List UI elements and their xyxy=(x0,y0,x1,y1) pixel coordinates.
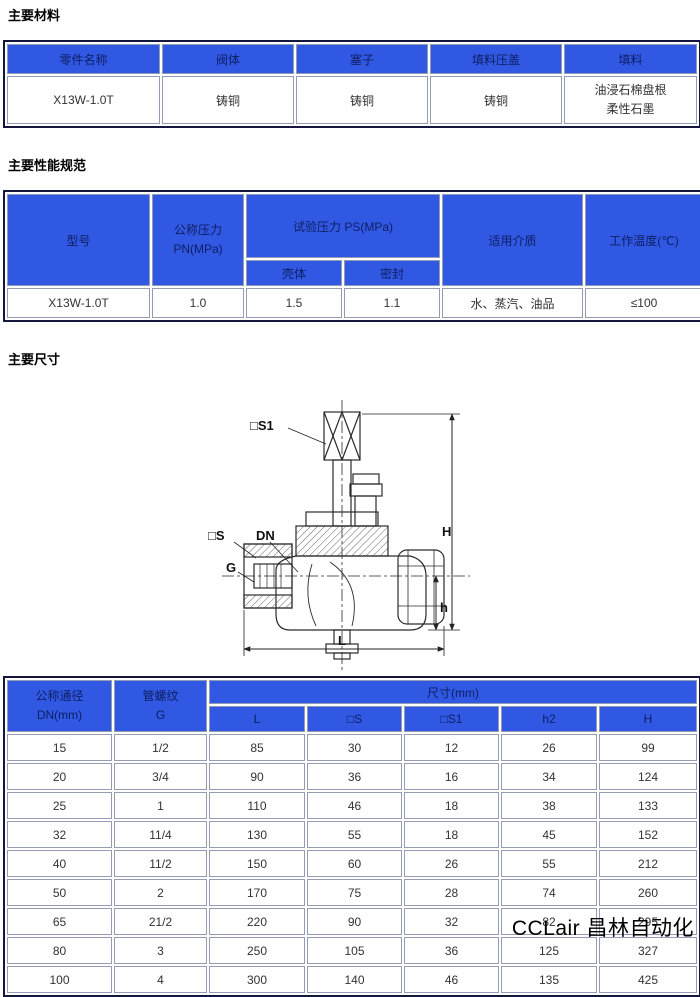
table-cell: 铸铜 xyxy=(162,76,294,124)
label-L: L xyxy=(338,633,346,648)
table-cell: 25 xyxy=(7,792,112,819)
column-header: 壳体 xyxy=(246,260,342,286)
table-cell: 100 xyxy=(7,966,112,993)
label-dn: DN xyxy=(256,528,275,543)
table-cell: 3 xyxy=(114,937,207,964)
table-cell: 26 xyxy=(501,734,597,761)
table-cell: 133 xyxy=(599,792,697,819)
materials-table: 零件名称 阀体 塞子 填料压盖 填料 X13W-1.0T 铸铜 铸铜 铸铜 油浸… xyxy=(3,40,700,128)
table-row: 4011/2150602655212 xyxy=(7,850,697,877)
column-header: 密封 xyxy=(344,260,440,286)
table-cell: 300 xyxy=(209,966,305,993)
table-cell: 90 xyxy=(307,908,402,935)
table-cell: 水、蒸汽、油品 xyxy=(442,288,583,318)
table-cell: 40 xyxy=(7,850,112,877)
table-cell: X13W-1.0T xyxy=(7,288,150,318)
table-cell: 220 xyxy=(209,908,305,935)
dimensions-table: 公称通径 DN(mm) 管螺纹 G 尺寸(mm) L □S □S1 h2 H 1… xyxy=(3,676,700,997)
table-cell: 铸铜 xyxy=(430,76,562,124)
table-cell: 12 xyxy=(404,734,499,761)
table-cell: 250 xyxy=(209,937,305,964)
column-header: 工作温度(℃) xyxy=(585,194,700,286)
table-cell: 铸铜 xyxy=(296,76,428,124)
label-h: h xyxy=(440,600,448,615)
table-cell: 16 xyxy=(404,763,499,790)
materials-header-row: 零件名称 阀体 塞子 填料压盖 填料 xyxy=(7,44,697,74)
column-header: 管螺纹 G xyxy=(114,680,207,732)
column-header: □S1 xyxy=(404,706,499,732)
table-row: 502170752874260 xyxy=(7,879,697,906)
table-cell: 99 xyxy=(599,734,697,761)
label-H: H xyxy=(442,524,451,539)
table-cell: 18 xyxy=(404,792,499,819)
table-cell: ≤100 xyxy=(585,288,700,318)
table-cell: 212 xyxy=(599,850,697,877)
table-cell: 45 xyxy=(501,821,597,848)
table-cell: 油浸石棉盘根 柔性石墨 xyxy=(564,76,697,124)
column-header: L xyxy=(209,706,305,732)
dimensions-header-row: 公称通径 DN(mm) 管螺纹 G 尺寸(mm) xyxy=(7,680,697,704)
column-header: □S xyxy=(307,706,402,732)
table-row: 251110461838133 xyxy=(7,792,697,819)
label-g: G xyxy=(226,560,236,575)
table-cell: 28 xyxy=(404,879,499,906)
table-cell: 20 xyxy=(7,763,112,790)
column-header: H xyxy=(599,706,697,732)
table-cell: 38 xyxy=(501,792,597,819)
table-row: 151/28530122699 xyxy=(7,734,697,761)
table-cell: 75 xyxy=(307,879,402,906)
column-header: h2 xyxy=(501,706,597,732)
table-cell: 80 xyxy=(7,937,112,964)
column-header: 尺寸(mm) xyxy=(209,680,697,704)
table-cell: 1 xyxy=(114,792,207,819)
table-cell: 32 xyxy=(404,908,499,935)
table-cell: 34 xyxy=(501,763,597,790)
table-cell: 46 xyxy=(404,966,499,993)
performance-data-row: X13W-1.0T 1.0 1.5 1.1 水、蒸汽、油品 ≤100 xyxy=(7,288,700,318)
table-row: 3211/4130551845152 xyxy=(7,821,697,848)
column-header: 型号 xyxy=(7,194,150,286)
column-header: 试验压力 PS(MPa) xyxy=(246,194,440,258)
table-cell: 60 xyxy=(307,850,402,877)
table-cell: 130 xyxy=(209,821,305,848)
column-header: 填料压盖 xyxy=(430,44,562,74)
column-header: 公称通径 DN(mm) xyxy=(7,680,112,732)
table-cell: 3/4 xyxy=(114,763,207,790)
table-cell: 150 xyxy=(209,850,305,877)
table-cell: 55 xyxy=(307,821,402,848)
table-cell: 152 xyxy=(599,821,697,848)
materials-data-row: X13W-1.0T 铸铜 铸铜 铸铜 油浸石棉盘根 柔性石墨 xyxy=(7,76,697,124)
table-cell: 85 xyxy=(209,734,305,761)
table-cell: 90 xyxy=(209,763,305,790)
table-cell: 1/2 xyxy=(114,734,207,761)
table-cell: 15 xyxy=(7,734,112,761)
column-header: 塞子 xyxy=(296,44,428,74)
performance-header-row: 型号 公称压力 PN(MPa) 试验压力 PS(MPa) 适用介质 工作温度(℃… xyxy=(7,194,700,258)
datasheet-page: 主要材料 零件名称 阀体 塞子 填料压盖 填料 X13W-1.0T 铸铜 铸铜 … xyxy=(0,0,700,997)
table-row: 100430014046135425 xyxy=(7,966,697,993)
table-cell: 30 xyxy=(307,734,402,761)
table-cell: 74 xyxy=(501,879,597,906)
table-cell: 425 xyxy=(599,966,697,993)
valve-drawing: □S1 □S DN G H h L xyxy=(0,384,700,676)
table-cell: 1.0 xyxy=(152,288,244,318)
column-header: 零件名称 xyxy=(7,44,160,74)
table-cell: 105 xyxy=(307,937,402,964)
section-title-performance: 主要性能规范 xyxy=(8,158,700,174)
table-cell: 32 xyxy=(7,821,112,848)
table-cell: 50 xyxy=(7,879,112,906)
table-cell: 110 xyxy=(209,792,305,819)
column-header: 适用介质 xyxy=(442,194,583,286)
section-title-materials: 主要材料 xyxy=(8,8,700,24)
table-cell: 124 xyxy=(599,763,697,790)
table-cell: 2 xyxy=(114,879,207,906)
column-header: 填料 xyxy=(564,44,697,74)
column-header: 阀体 xyxy=(162,44,294,74)
table-cell: 18 xyxy=(404,821,499,848)
table-cell: 135 xyxy=(501,966,597,993)
label-s1: □S1 xyxy=(250,418,274,433)
performance-table: 型号 公称压力 PN(MPa) 试验压力 PS(MPa) 适用介质 工作温度(℃… xyxy=(3,190,700,322)
valve-cross-section-diagram: □S1 □S DN G H h L xyxy=(0,384,700,676)
label-s: □S xyxy=(208,528,225,543)
table-cell: 140 xyxy=(307,966,402,993)
table-cell: 11/2 xyxy=(114,850,207,877)
table-cell: 260 xyxy=(599,879,697,906)
table-cell: 46 xyxy=(307,792,402,819)
table-cell: 36 xyxy=(307,763,402,790)
table-cell: 11/4 xyxy=(114,821,207,848)
table-cell: 4 xyxy=(114,966,207,993)
table-cell: X13W-1.0T xyxy=(7,76,160,124)
table-cell: 26 xyxy=(404,850,499,877)
table-cell: 55 xyxy=(501,850,597,877)
dimensions-table-body: 151/28530122699203/490361634124251110461… xyxy=(7,734,697,993)
section-title-dimensions: 主要尺寸 xyxy=(8,352,700,368)
table-cell: 170 xyxy=(209,879,305,906)
table-cell: 65 xyxy=(7,908,112,935)
table-cell: 36 xyxy=(404,937,499,964)
table-cell: 1.5 xyxy=(246,288,342,318)
table-row: 203/490361634124 xyxy=(7,763,697,790)
brand-watermark: CCLair 昌林自动化 xyxy=(512,912,694,942)
column-header: 公称压力 PN(MPa) xyxy=(152,194,244,286)
table-cell: 1.1 xyxy=(344,288,440,318)
table-cell: 21/2 xyxy=(114,908,207,935)
